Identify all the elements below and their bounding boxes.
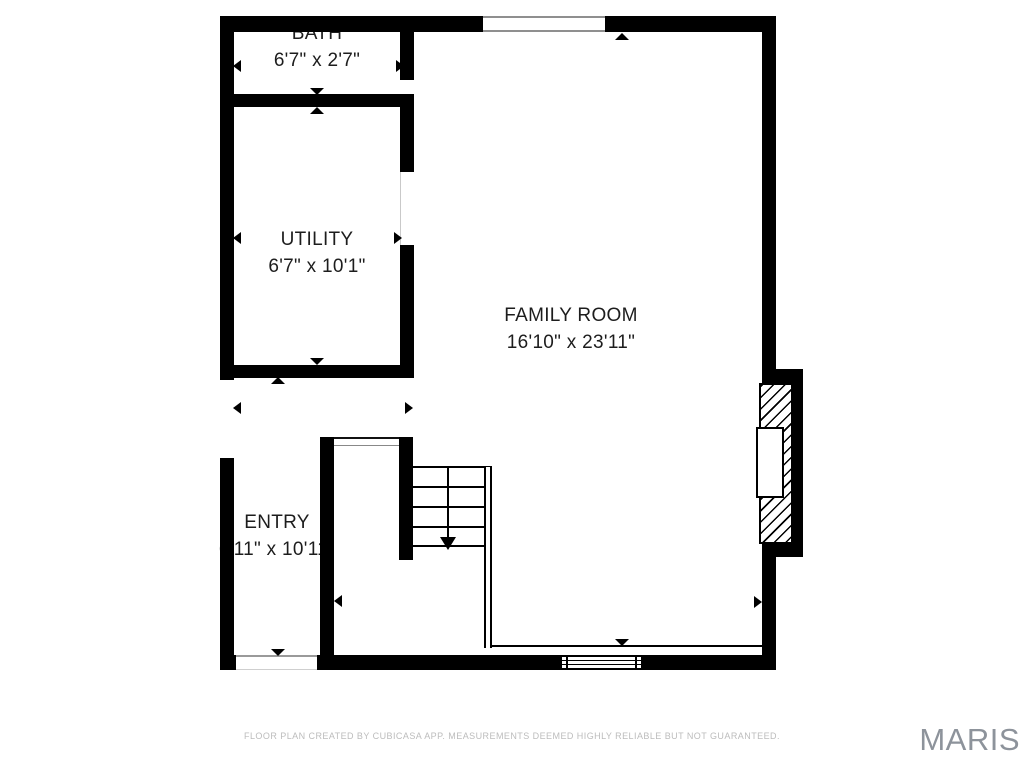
wall-top-right	[605, 16, 776, 32]
dim-arrow-left-icon	[334, 595, 342, 607]
window-bottom	[560, 655, 643, 670]
fireplace-firebox	[756, 427, 784, 498]
dim-arrow-right-icon	[754, 596, 762, 608]
wall-stair-right	[399, 437, 413, 560]
dim-arrow-down-icon	[310, 358, 324, 365]
dim-arrow-right-icon	[394, 232, 402, 244]
window-mullion	[562, 660, 641, 661]
dim-arrow-down-icon	[271, 649, 285, 656]
dim-arrow-up-icon	[310, 107, 324, 114]
dim-arrow-down-icon	[310, 88, 324, 95]
wall-bottom-corner	[220, 655, 236, 670]
stair-tread	[413, 486, 492, 488]
dim-arrow-right-icon	[396, 60, 404, 72]
window-mullion	[562, 664, 641, 665]
stair-direction-line	[447, 467, 449, 539]
wall-utility-right-a	[400, 94, 414, 172]
opening-stairs	[334, 437, 399, 446]
dim-arrow-left-icon	[233, 60, 241, 72]
wall-right-lower	[762, 557, 776, 670]
stair-tread	[413, 506, 492, 508]
wall-bath-utility-divider	[220, 94, 413, 107]
maris-watermark: MARIS	[919, 722, 1020, 758]
stair-rail	[484, 467, 492, 648]
wall-left-lower	[220, 458, 234, 670]
dim-arrow-down-icon	[615, 639, 629, 646]
room-label-family-room: FAMILY ROOM 16'10" x 23'11"	[451, 302, 691, 356]
wall-entry-stair	[320, 437, 334, 670]
dim-arrow-up-icon	[271, 377, 285, 384]
wall-right-upper	[762, 16, 776, 370]
stair-tread	[413, 466, 492, 468]
window-top	[483, 16, 605, 32]
room-name: FAMILY ROOM	[451, 302, 691, 329]
dim-arrow-left-icon	[233, 232, 241, 244]
window-frame-left	[566, 657, 568, 668]
dim-arrow-up-icon	[615, 33, 629, 40]
room-dimensions: 6'11" x 10'11"	[157, 536, 397, 563]
stair-tread	[413, 526, 492, 528]
dim-arrow-right-icon	[405, 402, 413, 414]
wall-bottom-right	[643, 655, 776, 670]
wall-utility-right-b	[400, 245, 414, 378]
wall-bottom-center	[317, 655, 560, 670]
room-dimensions: 16'10" x 23'11"	[451, 329, 691, 356]
wall-top-left	[220, 16, 483, 32]
door-opening-entry	[236, 655, 317, 670]
wall-utility-entry-divider	[220, 365, 413, 378]
footer-disclaimer: FLOOR PLAN CREATED BY CUBICASA APP. MEAS…	[0, 731, 1024, 741]
floor-plan: BATH 6'7" x 2'7" UTILITY 6'7" x 10'1" FA…	[0, 0, 1024, 767]
room-label-entry: ENTRY 6'11" x 10'11"	[157, 509, 397, 563]
wall-left-upper	[220, 16, 234, 380]
dim-arrow-left-icon	[233, 402, 241, 414]
room-name: ENTRY	[157, 509, 397, 536]
stair-down-arrow-icon	[440, 537, 456, 550]
window-frame-right	[635, 657, 637, 668]
